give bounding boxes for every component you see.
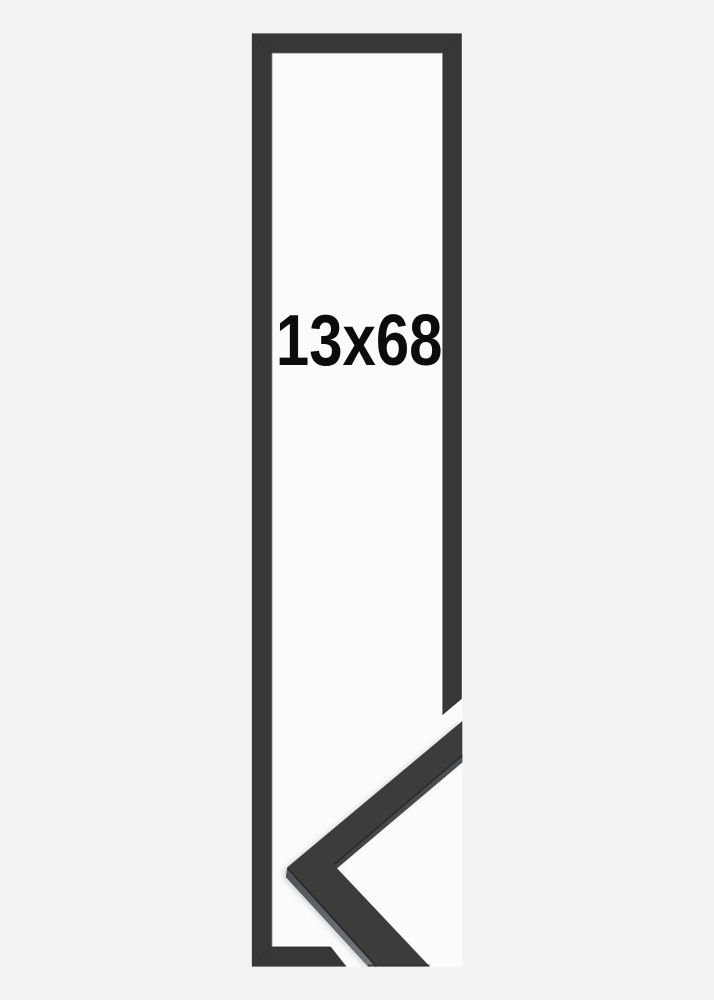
svg-text:13x68: 13x68 xyxy=(276,301,443,381)
